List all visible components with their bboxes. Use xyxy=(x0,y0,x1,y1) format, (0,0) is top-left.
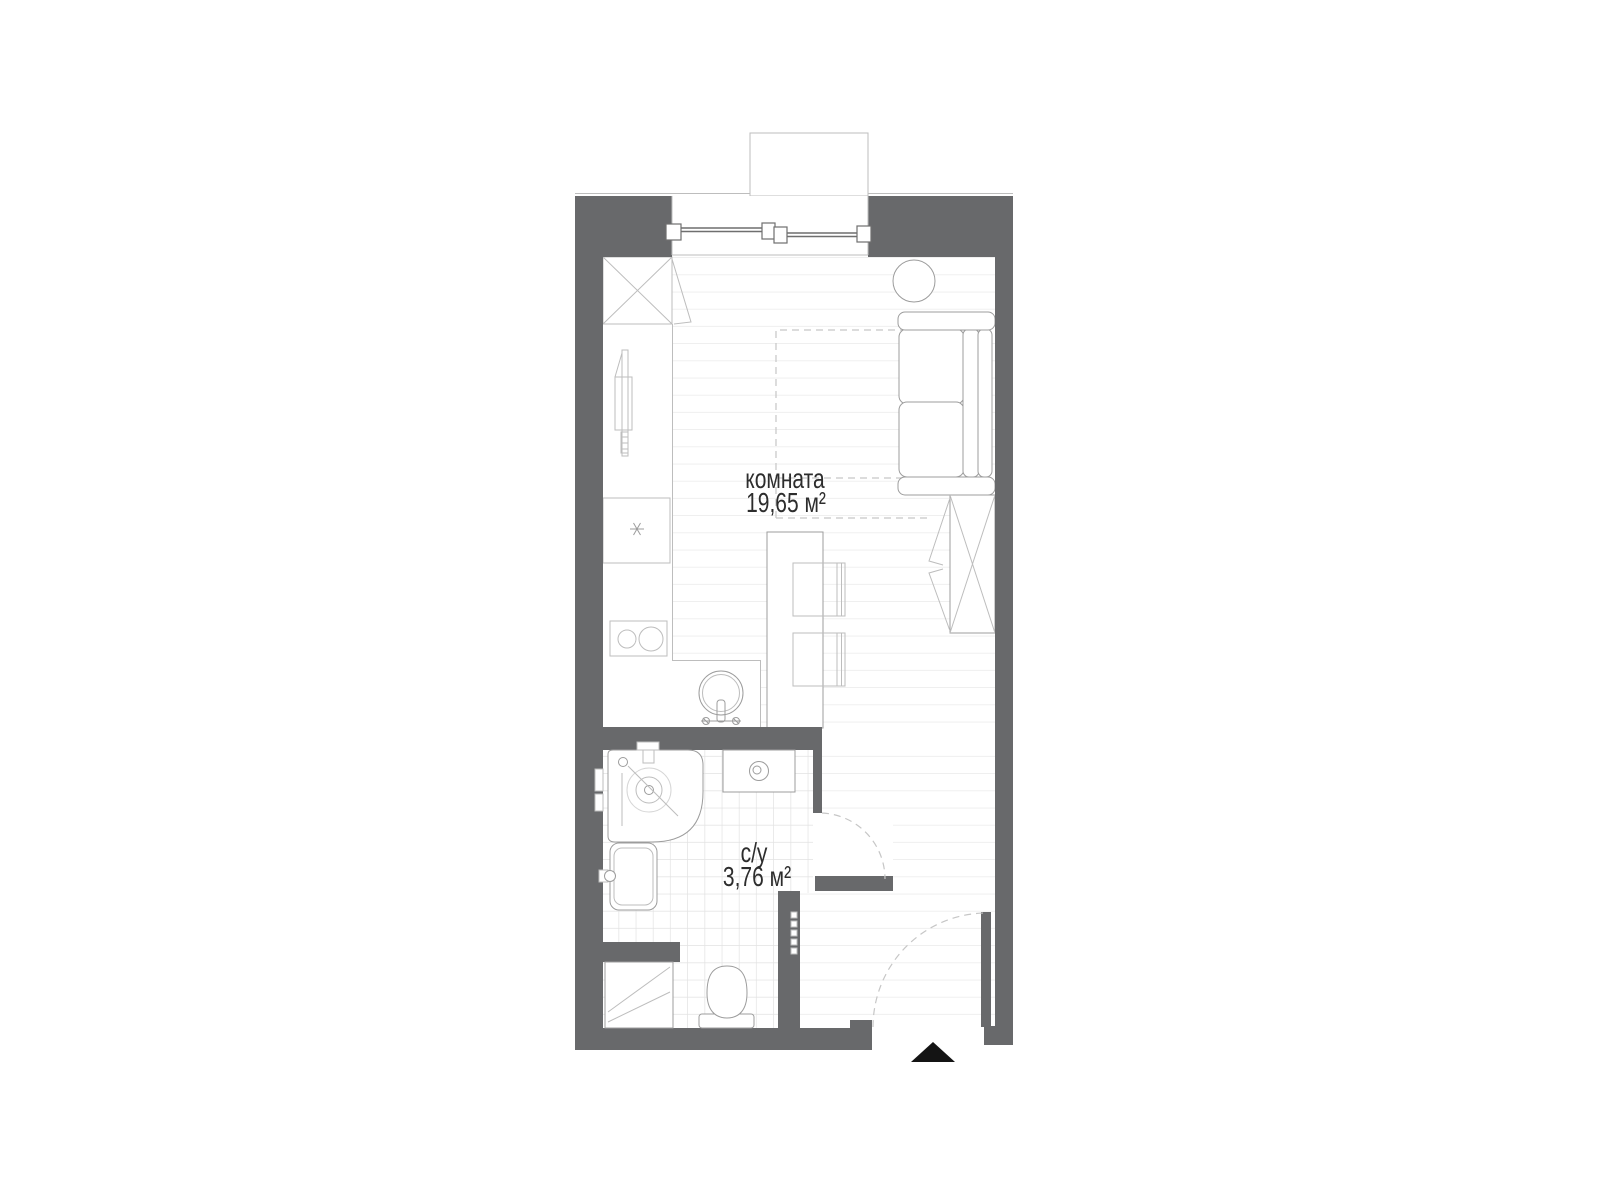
bar-island xyxy=(767,532,823,728)
appliance-box xyxy=(603,498,670,563)
balcony xyxy=(575,133,1013,196)
kitchen-sink xyxy=(699,671,743,725)
floor-plan-canvas: комната 19,65 м² с/у 3,76 м² xyxy=(0,0,1600,1200)
room-area-label: 19,65 м² xyxy=(674,490,899,516)
electrical-panel xyxy=(791,912,797,954)
shower-tray xyxy=(608,750,703,842)
entrance-marker-icon xyxy=(911,1042,955,1062)
kitchen-tall-unit xyxy=(615,350,632,456)
washing-machine xyxy=(723,750,795,792)
pouf xyxy=(893,260,935,302)
water-heater-cabinet xyxy=(605,962,673,1028)
window xyxy=(666,196,871,255)
cooktop xyxy=(610,621,667,656)
floor-plan-drawing xyxy=(0,0,1600,1200)
sofa xyxy=(898,312,995,495)
bathroom-area-label: 3,76 м² xyxy=(645,864,870,890)
